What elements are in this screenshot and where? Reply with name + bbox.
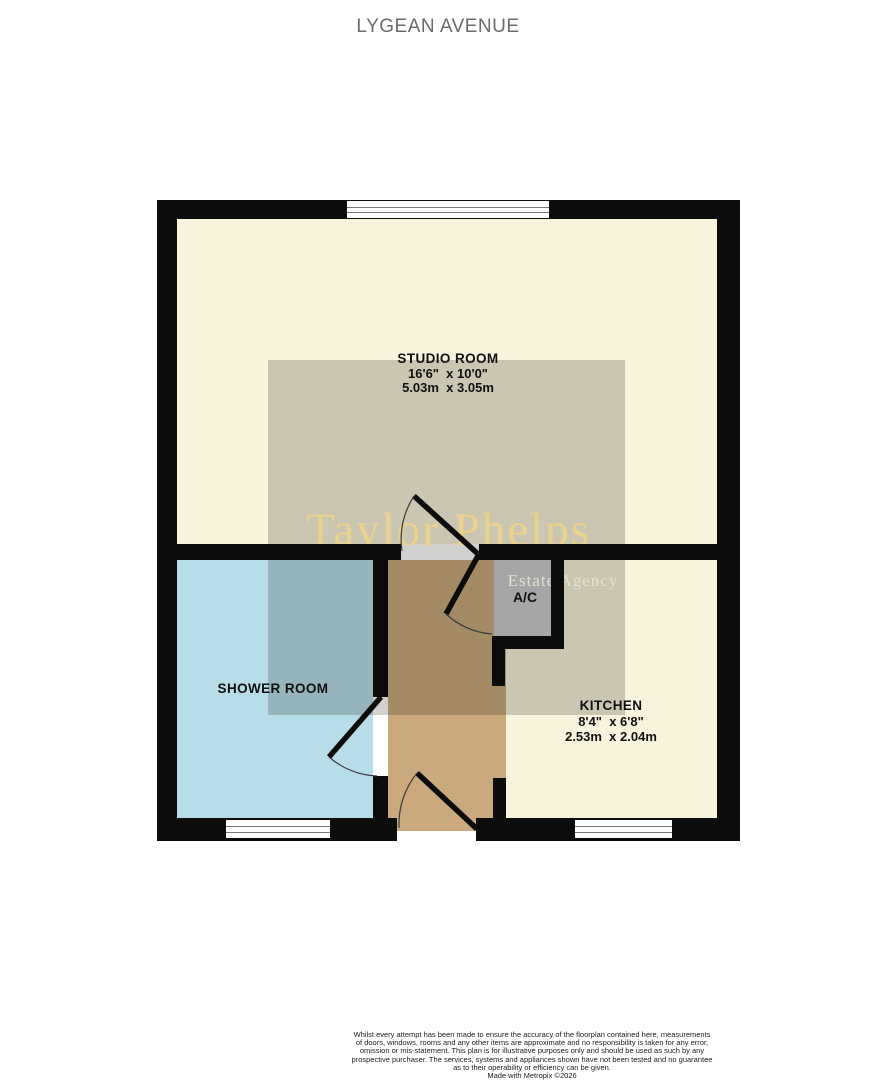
window-pane-line <box>575 826 672 827</box>
hall-kitchen-stub-lower <box>493 778 506 818</box>
exterior-wall-left <box>157 200 177 841</box>
window-pane-line <box>347 212 549 213</box>
plan-title: LYGEAN AVENUE <box>0 16 884 38</box>
room-size-metric: 5.03m x 3.05m <box>318 381 578 396</box>
shower-room-label: SHOWER ROOM <box>193 681 353 696</box>
middle-wall-left-segment <box>157 544 401 560</box>
cupboard-wall-bottom <box>492 636 564 649</box>
kitchen-label: KITCHEN 8'4" x 6'8" 2.53m x 2.04m <box>481 698 741 745</box>
window-pane-line <box>226 826 330 827</box>
entrance-threshold-floor <box>397 818 476 831</box>
shower-hall-divider-lower <box>373 776 388 818</box>
floorplan: Taylor Phelps Estate Agency <box>157 200 740 841</box>
studio-room-label: STUDIO ROOM 16'6" x 10'0" 5.03m x 3.05m <box>318 352 578 396</box>
room-size-imperial: 16'6" x 10'0" <box>318 367 578 382</box>
shower-hall-divider-upper <box>373 560 388 697</box>
room-size-imperial: 8'4" x 6'8" <box>481 714 741 730</box>
disclaimer-text: Whilst every attempt has been made to en… <box>322 1031 742 1080</box>
room-size-metric: 2.53m x 2.04m <box>481 729 741 745</box>
room-name: SHOWER ROOM <box>193 681 353 696</box>
exterior-wall-right <box>717 200 740 841</box>
disclaimer-line: Made with Metropix ©2026 <box>322 1072 742 1080</box>
window-pane-line <box>575 832 672 833</box>
shower-window <box>226 820 330 838</box>
kitchen-window <box>575 820 672 838</box>
hall-kitchen-stub-upper <box>492 649 505 686</box>
airing-cupboard-label: A/C <box>493 589 557 605</box>
floorplan-page: LYGEAN AVENUE Taylor Phelps Estate Agenc… <box>0 0 892 1080</box>
studio-window <box>347 201 549 218</box>
room-name: STUDIO ROOM <box>318 352 578 367</box>
middle-wall-right-segment <box>479 544 740 560</box>
room-name: KITCHEN <box>481 698 741 714</box>
window-pane-line <box>347 207 549 208</box>
window-pane-line <box>226 832 330 833</box>
